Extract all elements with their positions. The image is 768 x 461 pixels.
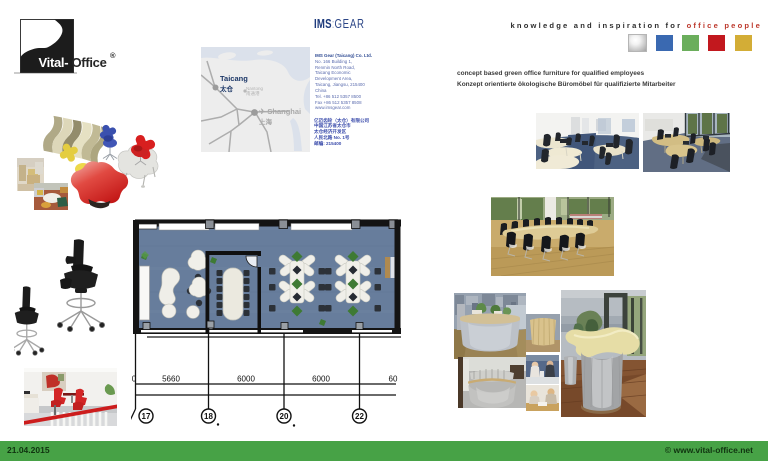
svg-text:17: 17 [142, 412, 151, 421]
svg-text:5660: 5660 [162, 375, 180, 384]
svg-text:®: ® [110, 51, 116, 60]
svg-text:Office: Office [72, 55, 107, 70]
svg-text:60: 60 [389, 375, 398, 384]
svg-text:18: 18 [204, 412, 213, 421]
svg-text:Vital-: Vital- [39, 55, 69, 70]
svg-text:22: 22 [355, 412, 364, 421]
svg-text:6000: 6000 [312, 375, 330, 384]
svg-text:0: 0 [132, 375, 137, 384]
svg-text:20: 20 [280, 412, 289, 421]
svg-text:6000: 6000 [237, 375, 255, 384]
